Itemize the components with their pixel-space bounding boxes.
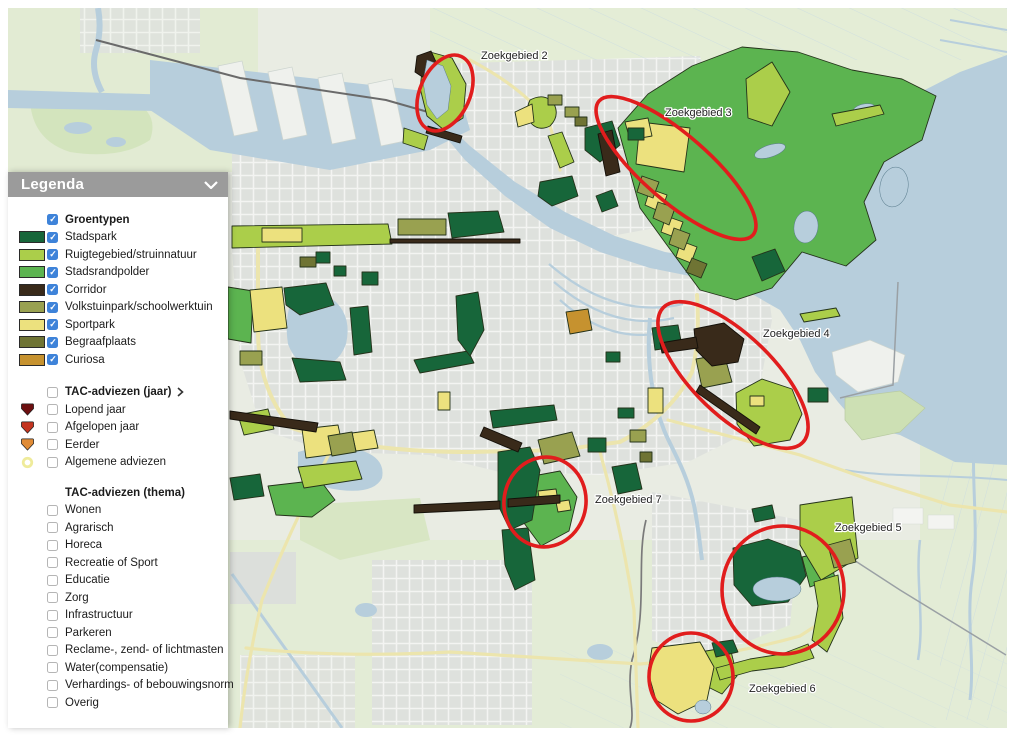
stadsrandpolder-checkbox[interactable]: [47, 267, 58, 278]
tac-ring-yellow-icon: [20, 456, 35, 469]
legend-item-educatie[interactable]: Educatie: [8, 572, 228, 590]
corridor-checkbox[interactable]: [47, 284, 58, 295]
afgelopen-jaar-checkbox[interactable]: [47, 422, 58, 433]
sportpark-checkbox[interactable]: [47, 319, 58, 330]
legend-item-overig[interactable]: Overig: [8, 694, 228, 712]
zoekgebied-3-label: Zoekgebied 3: [665, 107, 732, 119]
curiosa-swatch: [19, 354, 45, 366]
corridor-swatch: [19, 284, 45, 296]
legend-item-zorg[interactable]: Zorg: [8, 589, 228, 607]
legend-item-recreatie-of-sport[interactable]: Recreatie of Sport: [8, 554, 228, 572]
water-compensatie-checkbox[interactable]: [47, 662, 58, 673]
legend-item-stadspark[interactable]: Stadspark: [8, 229, 228, 247]
tac-jaar-label: TAC-adviezen (jaar): [65, 386, 172, 398]
zoekgebied-2-label: Zoekgebied 2: [481, 50, 548, 62]
groentypen-label: Groentypen: [65, 214, 130, 226]
legend-item-ruigtegebied[interactable]: Ruigtegebied/struinnatuur: [8, 246, 228, 264]
legend-item-algemene-adviezen[interactable]: Algemene adviezen: [8, 454, 228, 472]
ruigtegebied-swatch: [19, 249, 45, 261]
tac-marker-dark-red-icon: [20, 403, 35, 416]
legend-item-horeca[interactable]: Horeca: [8, 537, 228, 555]
infrastructuur-checkbox[interactable]: [47, 610, 58, 621]
legend-body: Groentypen Stadspark Ruigtegebied/struin…: [8, 197, 228, 712]
parkeren-checkbox[interactable]: [47, 627, 58, 638]
legend-item-agrarisch[interactable]: Agrarisch: [8, 519, 228, 537]
legend-item-eerder[interactable]: Eerder: [8, 436, 228, 454]
educatie-checkbox[interactable]: [47, 575, 58, 586]
groentypen-checkbox[interactable]: [47, 214, 58, 225]
legend-item-stadsrandpolder[interactable]: Stadsrandpolder: [8, 264, 228, 282]
legend-title: Legenda: [21, 176, 84, 193]
legend-panel: Legenda Groentypen Stadspark Ruigtegebie…: [8, 172, 228, 728]
horeca-checkbox[interactable]: [47, 540, 58, 551]
legend-item-lopend-jaar[interactable]: Lopend jaar: [8, 401, 228, 419]
stadspark-swatch: [19, 231, 45, 243]
legend-group-tac-thema: TAC-adviezen (thema): [8, 484, 228, 502]
zorg-checkbox[interactable]: [47, 592, 58, 603]
legend-group-tac-jaar[interactable]: TAC-adviezen (jaar): [8, 384, 228, 402]
tac-marker-red-icon: [20, 421, 35, 434]
legend-group-groentypen[interactable]: Groentypen: [8, 211, 228, 229]
screenshot-frame: Zoekgebied 2 Zoekgebied 3 Zoekgebied 4 Z…: [0, 0, 1015, 736]
legend-item-wonen[interactable]: Wonen: [8, 502, 228, 520]
ruigtegebied-checkbox[interactable]: [47, 249, 58, 260]
legend-item-sportpark[interactable]: Sportpark: [8, 316, 228, 334]
wonen-checkbox[interactable]: [47, 505, 58, 516]
begraafplaats-swatch: [19, 336, 45, 348]
legend-item-curiosa[interactable]: Curiosa: [8, 351, 228, 369]
overig-checkbox[interactable]: [47, 697, 58, 708]
legend-item-infrastructuur[interactable]: Infrastructuur: [8, 607, 228, 625]
legend-item-reclame-zend-lichtmasten[interactable]: Reclame-, zend- of lichtmasten: [8, 642, 228, 660]
chevron-right-icon[interactable]: [177, 387, 184, 397]
volkstuinpark-swatch: [19, 301, 45, 313]
reclame-checkbox[interactable]: [47, 645, 58, 656]
eerder-checkbox[interactable]: [47, 439, 58, 450]
legend-item-begraafplaats[interactable]: Begraafplaats: [8, 334, 228, 352]
chevron-down-icon[interactable]: [204, 181, 218, 189]
lopend-jaar-checkbox[interactable]: [47, 404, 58, 415]
sportpark-swatch: [19, 319, 45, 331]
algemene-adviezen-checkbox[interactable]: [47, 457, 58, 468]
stadsrandpolder-swatch: [19, 266, 45, 278]
legend-item-water-compensatie[interactable]: Water(compensatie): [8, 659, 228, 677]
tac-marker-orange-icon: [20, 438, 35, 451]
curiosa-checkbox[interactable]: [47, 354, 58, 365]
verhardingsnorm-checkbox[interactable]: [47, 680, 58, 691]
zoekgebied-4-label: Zoekgebied 4: [763, 328, 830, 340]
legend-item-afgelopen-jaar[interactable]: Afgelopen jaar: [8, 419, 228, 437]
volkstuinpark-checkbox[interactable]: [47, 302, 58, 313]
agrarisch-checkbox[interactable]: [47, 522, 58, 533]
tac-thema-label: TAC-adviezen (thema): [65, 487, 185, 499]
zoekgebied-5-label: Zoekgebied 5: [835, 522, 902, 534]
legend-item-volkstuinpark[interactable]: Volkstuinpark/schoolwerktuin: [8, 299, 228, 317]
zoekgebied-7-label: Zoekgebied 7: [595, 494, 662, 506]
tac-jaar-checkbox[interactable]: [47, 387, 58, 398]
begraafplaats-checkbox[interactable]: [47, 337, 58, 348]
recreatie-of-sport-checkbox[interactable]: [47, 557, 58, 568]
legend-item-corridor[interactable]: Corridor: [8, 281, 228, 299]
legend-item-parkeren[interactable]: Parkeren: [8, 624, 228, 642]
legend-item-verhardings-bebouwingsnorm[interactable]: Verhardings- of bebouwingsnorm: [8, 677, 228, 695]
zoekgebied-6-label: Zoekgebied 6: [749, 683, 816, 695]
stadspark-checkbox[interactable]: [47, 232, 58, 243]
legend-header[interactable]: Legenda: [8, 172, 228, 197]
